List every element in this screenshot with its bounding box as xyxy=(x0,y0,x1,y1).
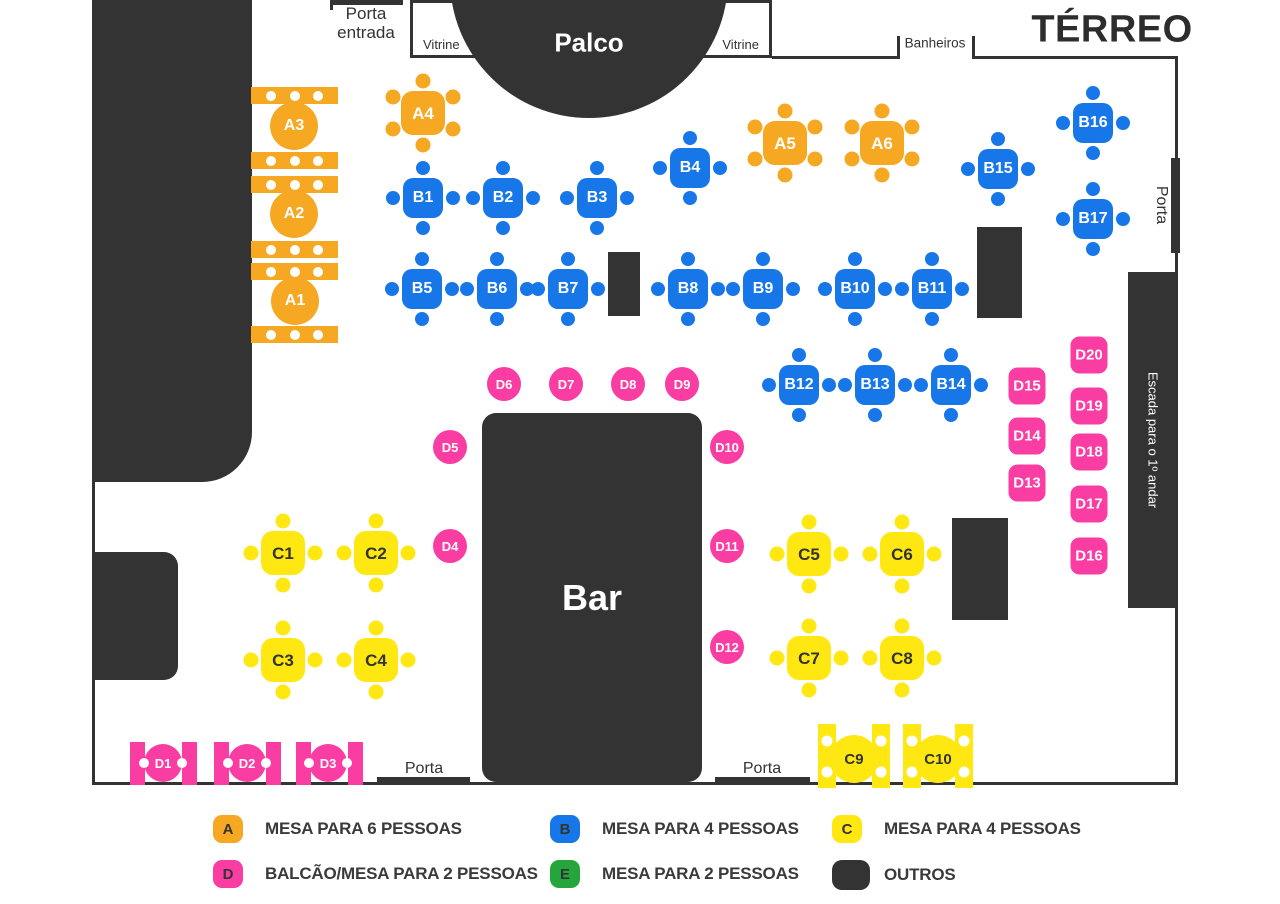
chair-dot xyxy=(496,221,510,235)
stage-label: Palco xyxy=(554,28,623,59)
right-door-label: Porta xyxy=(1152,186,1170,224)
chair-dot xyxy=(895,619,910,634)
chair-dot xyxy=(802,619,817,634)
chair-dot xyxy=(778,104,793,119)
chair-dot xyxy=(244,546,259,561)
table-A4: A4 xyxy=(401,91,445,135)
chair-dot xyxy=(991,132,1005,146)
table-A1: A1 xyxy=(271,277,319,325)
table-C1: C1 xyxy=(261,531,305,575)
chair-dot xyxy=(337,546,352,561)
chair-dot xyxy=(802,515,817,530)
table-D5: D5 xyxy=(433,430,467,464)
chair-dot xyxy=(905,152,920,167)
table-D6: D6 xyxy=(487,367,521,401)
table-B7: B7 xyxy=(548,269,588,309)
legend-label-D: BALCÃO/MESA PARA 2 PESSOAS xyxy=(265,864,538,884)
legend-chip-E: E xyxy=(550,860,580,888)
chair-dot xyxy=(466,191,480,205)
chair-dot xyxy=(792,408,806,422)
chair-dot xyxy=(925,312,939,326)
chair-dot xyxy=(726,282,740,296)
chair-dot xyxy=(944,408,958,422)
table-C8: C8 xyxy=(880,636,924,680)
chair-dot xyxy=(848,312,862,326)
table-A3: A3 xyxy=(270,102,318,150)
counter-seat-dot xyxy=(876,767,887,778)
chair-dot xyxy=(748,120,763,135)
bench-seat-dot xyxy=(290,267,300,277)
table-C9: C9 xyxy=(830,735,878,783)
pillar-2 xyxy=(977,227,1022,318)
chair-dot xyxy=(818,282,832,296)
chair-dot xyxy=(308,546,323,561)
chair-dot xyxy=(834,547,849,562)
chair-dot xyxy=(762,378,776,392)
counter-seat-dot xyxy=(304,758,314,768)
chair-dot xyxy=(756,312,770,326)
chair-dot xyxy=(711,282,725,296)
table-A5: A5 xyxy=(763,121,807,165)
chair-dot xyxy=(416,161,430,175)
chair-dot xyxy=(895,282,909,296)
stairs-to-first-floor: Escada para o 1º andar xyxy=(1128,272,1178,608)
chair-dot xyxy=(863,547,878,562)
counter-seat-dot xyxy=(959,736,970,747)
bottom-wall xyxy=(92,782,1178,785)
pillar-1 xyxy=(608,252,640,316)
table-B5: B5 xyxy=(402,269,442,309)
chair-dot xyxy=(1056,212,1070,226)
chair-dot xyxy=(802,683,817,698)
chair-dot xyxy=(927,651,942,666)
table-D9: D9 xyxy=(665,367,699,401)
table-D14: D14 xyxy=(1009,418,1046,455)
chair-dot xyxy=(416,221,430,235)
bench-seat-dot xyxy=(313,91,323,101)
bench-seat-dot xyxy=(266,180,276,190)
table-D18: D18 xyxy=(1071,434,1108,471)
bench-seat-dot xyxy=(290,156,300,166)
legend-label-A: MESA PARA 6 PESSOAS xyxy=(265,819,462,839)
entrance-door-label: Porta entrada xyxy=(337,4,395,42)
chair-dot xyxy=(416,138,431,153)
chair-dot xyxy=(895,683,910,698)
bar-counter: Bar xyxy=(482,413,702,782)
legend-chip-outros xyxy=(832,860,870,890)
chair-dot xyxy=(1086,86,1100,100)
floor-plan-terreo: Vitrine Vitrine Palco Bar Escada para o … xyxy=(0,0,1280,904)
chair-dot xyxy=(914,378,928,392)
bench-seat-dot xyxy=(266,330,276,340)
chair-dot xyxy=(792,348,806,362)
chair-dot xyxy=(808,152,823,167)
table-D17: D17 xyxy=(1071,486,1108,523)
chair-dot xyxy=(756,252,770,266)
chair-dot xyxy=(369,514,384,529)
chair-dot xyxy=(401,653,416,668)
table-B1: B1 xyxy=(403,178,443,218)
table-D4: D4 xyxy=(433,529,467,563)
bench-seat-dot xyxy=(313,245,323,255)
page-title: TÉRREO xyxy=(1031,9,1192,52)
chair-dot xyxy=(369,685,384,700)
table-C3: C3 xyxy=(261,638,305,682)
table-D8: D8 xyxy=(611,367,645,401)
chair-dot xyxy=(1086,242,1100,256)
chair-dot xyxy=(560,191,574,205)
chair-dot xyxy=(446,122,461,137)
legend-chip-A: A xyxy=(213,815,243,843)
chair-dot xyxy=(944,348,958,362)
bench-seat-dot xyxy=(266,91,276,101)
chair-dot xyxy=(955,282,969,296)
chair-dot xyxy=(385,282,399,296)
chair-dot xyxy=(1086,146,1100,160)
top-wall-left-of-banheiros xyxy=(772,56,898,59)
legend-chip-D: D xyxy=(213,860,243,888)
bench-seat-dot xyxy=(266,245,276,255)
chair-dot xyxy=(386,122,401,137)
bottom-left-door-label: Porta xyxy=(405,760,443,778)
table-B3: B3 xyxy=(577,178,617,218)
legend-label-B: MESA PARA 4 PESSOAS xyxy=(602,819,799,839)
table-C10: C10 xyxy=(914,735,962,783)
legend-chip-C: C xyxy=(832,815,862,843)
table-B12: B12 xyxy=(779,365,819,405)
table-D10: D10 xyxy=(710,430,744,464)
chair-dot xyxy=(490,252,504,266)
table-D11: D11 xyxy=(710,529,744,563)
chair-dot xyxy=(561,252,575,266)
chair-dot xyxy=(1086,182,1100,196)
chair-dot xyxy=(244,653,259,668)
chair-dot xyxy=(526,191,540,205)
table-B14: B14 xyxy=(931,365,971,405)
chair-dot xyxy=(490,312,504,326)
table-D12: D12 xyxy=(710,630,744,664)
chair-dot xyxy=(927,547,942,562)
chair-dot xyxy=(895,515,910,530)
top-wall-right-of-banheiros xyxy=(973,56,1178,59)
chair-dot xyxy=(822,378,836,392)
bench-seat-dot xyxy=(266,156,276,166)
legend-label-E: MESA PARA 2 PESSOAS xyxy=(602,864,799,884)
chair-dot xyxy=(445,282,459,296)
chair-dot xyxy=(863,651,878,666)
chair-dot xyxy=(276,514,291,529)
table-C6: C6 xyxy=(880,532,924,576)
chair-dot xyxy=(1021,162,1035,176)
chair-dot xyxy=(276,685,291,700)
chair-dot xyxy=(446,191,460,205)
table-C5: C5 xyxy=(787,532,831,576)
chair-dot xyxy=(838,378,852,392)
chair-dot xyxy=(905,120,920,135)
table-D20: D20 xyxy=(1071,337,1108,374)
table-B4: B4 xyxy=(670,148,710,188)
chair-dot xyxy=(868,348,882,362)
chair-dot xyxy=(415,312,429,326)
bench-seat-dot xyxy=(313,330,323,340)
chair-dot xyxy=(681,252,695,266)
bench-seat-dot xyxy=(290,330,300,340)
chair-dot xyxy=(834,651,849,666)
legend-label-outros: OUTROS xyxy=(884,865,956,885)
table-B9: B9 xyxy=(743,269,783,309)
door-right xyxy=(1171,158,1180,253)
chair-dot xyxy=(681,312,695,326)
counter-seat-dot xyxy=(139,758,149,768)
bar-label: Bar xyxy=(562,577,622,619)
chair-dot xyxy=(369,621,384,636)
left-wall xyxy=(92,0,252,482)
pillar-4 xyxy=(95,552,178,680)
table-D16: D16 xyxy=(1071,538,1108,575)
table-B15: B15 xyxy=(978,149,1018,189)
legend-chip-B: B xyxy=(550,815,580,843)
chair-dot xyxy=(845,152,860,167)
chair-dot xyxy=(337,653,352,668)
bench-seat-dot xyxy=(313,156,323,166)
chair-dot xyxy=(786,282,800,296)
chair-dot xyxy=(1056,116,1070,130)
chair-dot xyxy=(875,104,890,119)
table-C4: C4 xyxy=(354,638,398,682)
chair-dot xyxy=(808,120,823,135)
chair-dot xyxy=(770,651,785,666)
bottom-right-door-label: Porta xyxy=(743,760,781,778)
bench-seat-dot xyxy=(313,180,323,190)
chair-dot xyxy=(683,131,697,145)
chair-dot xyxy=(531,282,545,296)
bench-seat-dot xyxy=(290,180,300,190)
door-bottom-right xyxy=(715,777,810,785)
stage-shape xyxy=(450,0,728,118)
chair-dot xyxy=(898,378,912,392)
bench-seat-dot xyxy=(266,267,276,277)
bench-seat-dot xyxy=(313,267,323,277)
counter-seat-dot xyxy=(822,736,833,747)
table-B8: B8 xyxy=(668,269,708,309)
banheiros-tick-left xyxy=(897,36,900,59)
stairs-label: Escada para o 1º andar xyxy=(1146,372,1161,508)
chair-dot xyxy=(386,90,401,105)
counter-seat-dot xyxy=(177,758,187,768)
chair-dot xyxy=(974,378,988,392)
counter-seat-dot xyxy=(907,736,918,747)
door-bottom-left xyxy=(377,777,470,785)
table-B10: B10 xyxy=(835,269,875,309)
chair-dot xyxy=(683,191,697,205)
legend-label-C: MESA PARA 4 PESSOAS xyxy=(884,819,1081,839)
chair-dot xyxy=(875,168,890,183)
chair-dot xyxy=(653,161,667,175)
bench-seat-dot xyxy=(290,245,300,255)
chair-dot xyxy=(620,191,634,205)
chair-dot xyxy=(276,578,291,593)
chair-dot xyxy=(651,282,665,296)
banheiros-label: Banheiros xyxy=(905,36,966,51)
chair-dot xyxy=(369,578,384,593)
chair-dot xyxy=(590,221,604,235)
table-D13: D13 xyxy=(1009,465,1046,502)
chair-dot xyxy=(591,282,605,296)
chair-dot xyxy=(401,546,416,561)
chair-dot xyxy=(276,621,291,636)
chair-dot xyxy=(460,282,474,296)
counter-seat-dot xyxy=(342,758,352,768)
table-D15: D15 xyxy=(1009,368,1046,405)
chair-dot xyxy=(778,168,793,183)
table-B6: B6 xyxy=(477,269,517,309)
bench-seat-dot xyxy=(290,91,300,101)
table-A2: A2 xyxy=(270,190,318,238)
chair-dot xyxy=(925,252,939,266)
table-C7: C7 xyxy=(787,636,831,680)
chair-dot xyxy=(748,152,763,167)
chair-dot xyxy=(802,579,817,594)
chair-dot xyxy=(561,312,575,326)
chair-dot xyxy=(878,282,892,296)
counter-seat-dot xyxy=(876,736,887,747)
chair-dot xyxy=(1116,116,1130,130)
chair-dot xyxy=(446,90,461,105)
table-D7: D7 xyxy=(549,367,583,401)
chair-dot xyxy=(1116,212,1130,226)
chair-dot xyxy=(770,547,785,562)
table-D19: D19 xyxy=(1071,388,1108,425)
chair-dot xyxy=(386,191,400,205)
chair-dot xyxy=(496,161,510,175)
table-B2: B2 xyxy=(483,178,523,218)
table-B17: B17 xyxy=(1073,199,1113,239)
chair-dot xyxy=(416,74,431,89)
counter-seat-dot xyxy=(261,758,271,768)
vitrine-right-label: Vitrine xyxy=(722,37,759,52)
chair-dot xyxy=(848,252,862,266)
counter-seat-dot xyxy=(223,758,233,768)
vitrine-left-label: Vitrine xyxy=(423,37,460,52)
chair-dot xyxy=(713,161,727,175)
table-A6: A6 xyxy=(860,121,904,165)
pillar-3 xyxy=(952,518,1008,620)
chair-dot xyxy=(895,579,910,594)
chair-dot xyxy=(590,161,604,175)
table-B16: B16 xyxy=(1073,103,1113,143)
chair-dot xyxy=(991,192,1005,206)
chair-dot xyxy=(308,653,323,668)
banheiros-tick-right xyxy=(972,36,975,59)
chair-dot xyxy=(415,252,429,266)
chair-dot xyxy=(845,120,860,135)
table-C2: C2 xyxy=(354,531,398,575)
table-B13: B13 xyxy=(855,365,895,405)
table-B11: B11 xyxy=(912,269,952,309)
chair-dot xyxy=(868,408,882,422)
chair-dot xyxy=(961,162,975,176)
